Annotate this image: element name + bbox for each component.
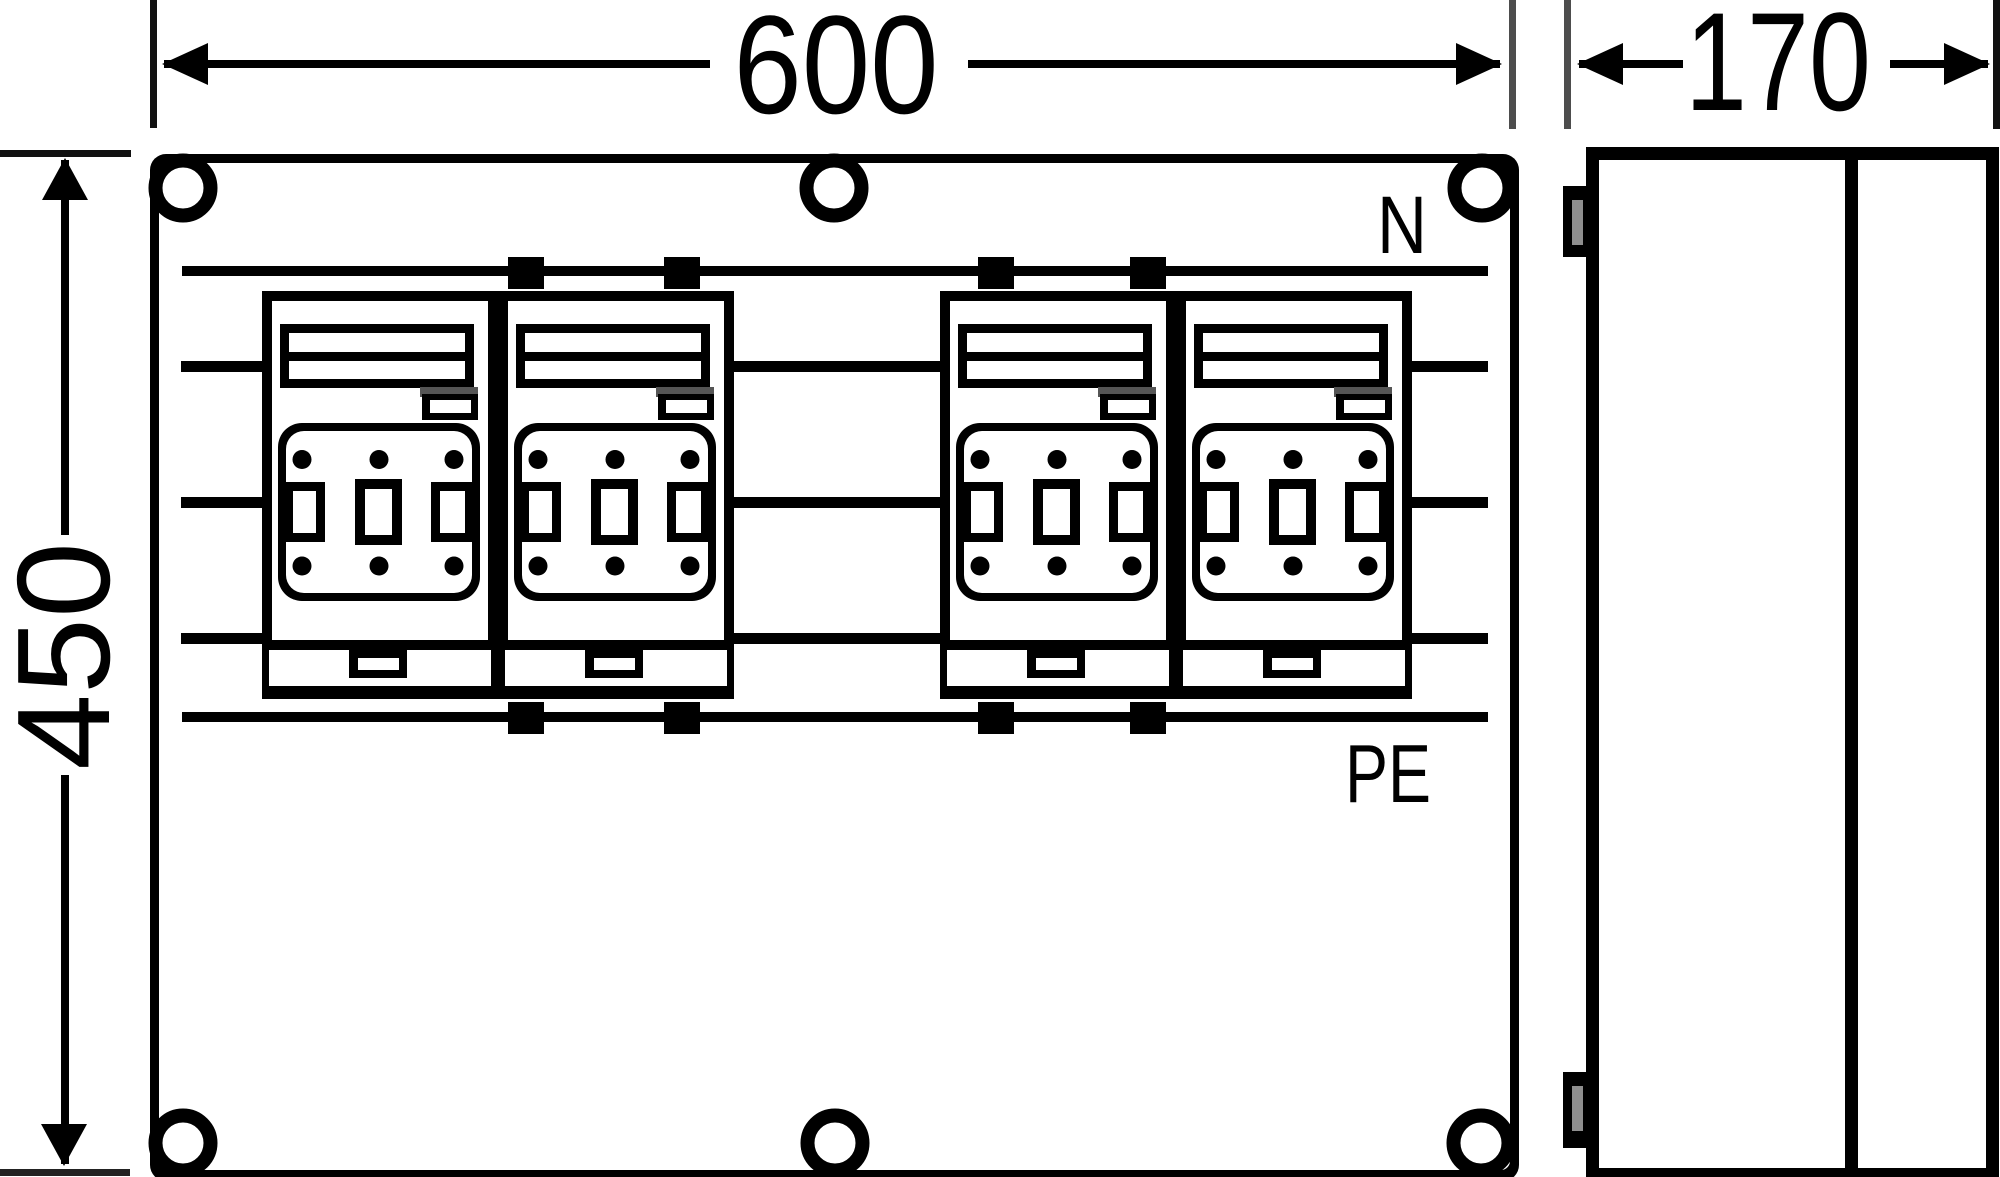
svg-text:N: N bbox=[1377, 180, 1427, 271]
svg-text:PE: PE bbox=[1345, 727, 1431, 820]
svg-text:450: 450 bbox=[0, 542, 137, 770]
svg-text:170: 170 bbox=[1685, 0, 1871, 140]
svg-text:600: 600 bbox=[734, 0, 939, 143]
